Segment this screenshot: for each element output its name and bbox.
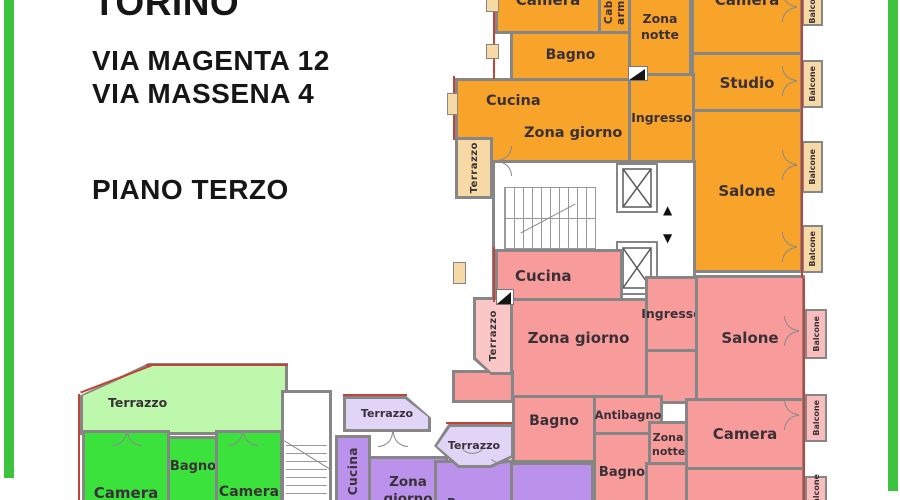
room-pink-fill — [645, 462, 688, 500]
room-bagno-pink-1: Bagno — [512, 395, 596, 463]
room-label: Cab. arm. — [603, 0, 627, 31]
balcony-label: Balcone — [808, 0, 817, 24]
exterior-wall-line — [446, 422, 512, 424]
room-bagno-orange: Bagno — [510, 31, 631, 81]
room-label: Zona giorno — [528, 329, 630, 348]
stair-landing-line — [505, 218, 595, 219]
room-salone-orange: Salone — [691, 109, 803, 273]
balcony-label: Balcone — [808, 231, 817, 267]
room-zona-giorno-pink: Zona giorno — [509, 298, 648, 401]
room-label: Salone — [721, 329, 778, 348]
stair-treads — [286, 439, 327, 500]
room-label: Studio — [720, 74, 775, 93]
terrace-label: Terrazzo — [469, 142, 480, 193]
terrace-floor: Terrazzo — [346, 399, 428, 429]
room-camera-orange-1: Camera — [495, 0, 601, 34]
room-cucina-pink: Cucina — [495, 249, 623, 303]
room-label: Cucina — [346, 447, 360, 495]
room-bagno-green: Bagno — [167, 436, 219, 500]
balcony-label: Balcone — [812, 474, 821, 500]
room-purple-east — [510, 462, 594, 500]
room-camera-orange-2: Camera — [691, 0, 803, 57]
terrace-label: Terrazzo — [488, 310, 499, 361]
room-label: Salone — [718, 182, 775, 201]
floor-label: PIANO TERZO — [92, 174, 289, 206]
room-camera-green-1: Camera — [82, 430, 170, 500]
window — [447, 93, 458, 115]
room-label: Cucina — [515, 267, 572, 286]
room-label: Camera — [715, 0, 779, 10]
room-label: Bagno — [546, 47, 596, 65]
arrow-down-icon: ▼ — [663, 232, 672, 244]
frame-left-bar — [4, 0, 14, 478]
room-label: Camera — [713, 425, 777, 444]
window — [486, 44, 499, 59]
terrace-label: Terrazzo — [361, 407, 413, 421]
window — [453, 262, 466, 284]
exterior-wall-line — [803, 278, 805, 500]
address-line-1: VIA MAGENTA 12 — [92, 45, 330, 77]
frame-right-bar — [888, 0, 898, 491]
room-label: Zona notte — [652, 431, 684, 459]
balcony-label: Balcone — [808, 149, 817, 185]
arrow-up-icon: ▲ — [663, 204, 672, 216]
exterior-wall-line — [146, 364, 288, 366]
balcony: Balcone — [805, 394, 827, 442]
terrace-label: Terrazzo — [108, 395, 167, 411]
room-label: Cucina — [486, 92, 541, 110]
door-marker-icon — [628, 66, 648, 81]
room-label: Ingresso — [641, 306, 702, 322]
room-zona-notte-pink: Zona notte — [648, 421, 688, 468]
room-label: Bagno — [447, 496, 490, 500]
balcony: Balcone — [802, 141, 823, 193]
room-label: Zona giorno — [524, 124, 622, 142]
floorplan-flyer: TORINO VIA MAGENTA 12 VIA MASSENA 4 PIAN… — [0, 0, 900, 500]
address-line-2: VIA MASSENA 4 — [92, 78, 314, 110]
staircase-secondary — [281, 390, 332, 500]
room-ingresso-pink: Ingresso — [645, 276, 698, 352]
room-label: Camera — [219, 484, 279, 500]
window — [486, 0, 499, 12]
room-bagno-pink-2: Bagno — [593, 432, 651, 500]
balcony-label: Balcone — [812, 400, 821, 436]
elevator-icon — [616, 163, 658, 213]
room-walkin-closet: Cab. arm. — [598, 0, 631, 34]
terrace-pink-floor: Terrazzo — [476, 300, 510, 372]
exterior-wall-line — [343, 394, 407, 396]
terrace-orange: Terrazzo — [455, 137, 493, 199]
room-label: Bagno — [529, 413, 579, 431]
balcony: Balcone — [802, 60, 823, 108]
exterior-wall-line — [801, 0, 803, 278]
exterior-wall-line — [493, 247, 495, 302]
room-label: Camera — [94, 484, 158, 500]
balcony-label: Balcone — [808, 66, 817, 102]
balcony: Balcone — [805, 309, 827, 359]
balcony: Balcone — [805, 476, 827, 500]
terrace-pink: Terrazzo — [473, 297, 513, 375]
room-label: Ingresso — [631, 110, 692, 126]
city-title: TORINO — [93, 0, 239, 24]
room-label: Zona giorno — [383, 474, 433, 500]
door-marker-icon — [496, 289, 514, 305]
terrace-green: Terrazzo — [80, 363, 288, 435]
room-cucina-purple: Cucina — [335, 435, 371, 500]
room-camera-pink-partial — [685, 467, 805, 500]
staircase-main — [504, 187, 596, 249]
room-label: Bagno — [170, 459, 216, 475]
room-label: Camera — [516, 0, 580, 10]
room-label: Zona notte — [640, 11, 680, 42]
balcony-label: Balcone — [812, 316, 821, 352]
room-ingresso-orange: Ingresso — [628, 73, 695, 163]
balcony: Balcone — [802, 225, 823, 273]
balcony: Balcone — [802, 0, 823, 26]
exterior-wall-line — [78, 394, 80, 500]
terrace-purple-1: Terrazzo — [343, 396, 431, 432]
room-label: Bagno — [599, 465, 645, 481]
room-studio-orange: Studio — [691, 52, 803, 114]
